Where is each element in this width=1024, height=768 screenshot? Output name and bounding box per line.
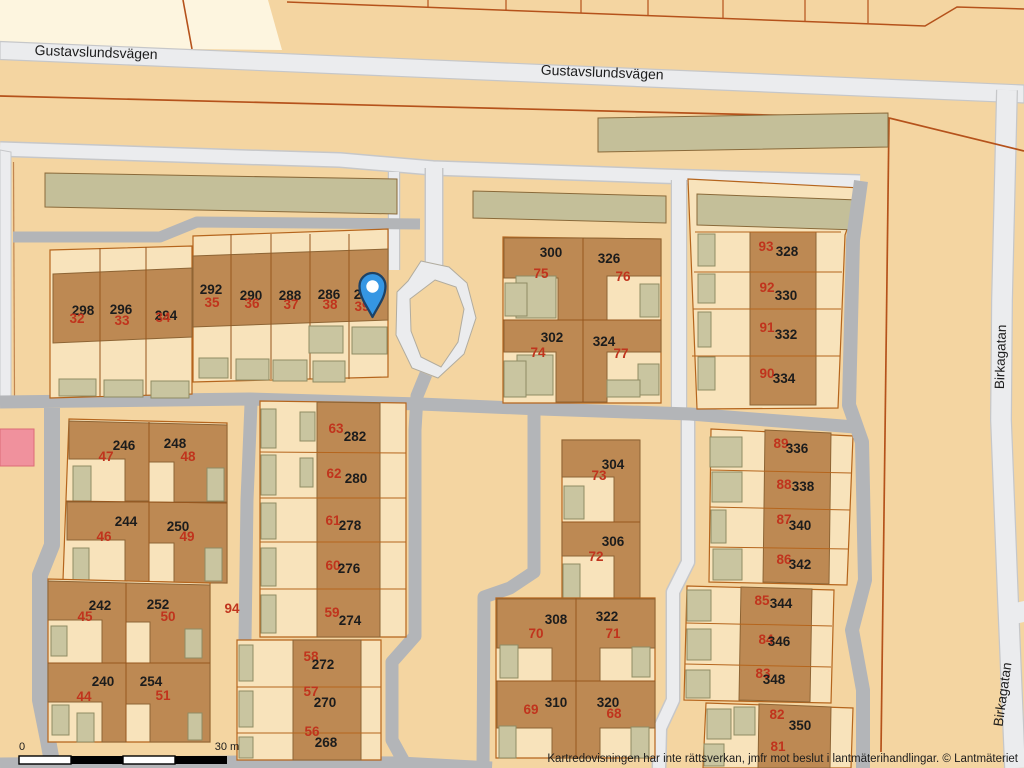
svg-text:76: 76 xyxy=(615,269,631,284)
svg-text:44: 44 xyxy=(76,689,92,704)
svg-text:276: 276 xyxy=(338,561,361,576)
svg-text:334: 334 xyxy=(773,371,796,386)
svg-text:278: 278 xyxy=(339,518,362,533)
svg-text:30 m: 30 m xyxy=(215,741,239,753)
svg-text:328: 328 xyxy=(776,244,799,259)
svg-text:37: 37 xyxy=(283,297,298,312)
svg-text:48: 48 xyxy=(180,449,196,464)
svg-text:46: 46 xyxy=(96,529,112,544)
svg-text:38: 38 xyxy=(322,297,338,312)
svg-text:324: 324 xyxy=(593,334,616,349)
svg-text:342: 342 xyxy=(789,557,812,572)
svg-text:75: 75 xyxy=(533,266,549,281)
svg-text:73: 73 xyxy=(591,468,607,483)
svg-text:32: 32 xyxy=(69,311,84,326)
svg-text:68: 68 xyxy=(606,706,622,721)
svg-text:350: 350 xyxy=(789,718,812,733)
svg-text:33: 33 xyxy=(114,313,130,328)
svg-text:338: 338 xyxy=(792,479,815,494)
svg-text:Kartredovisningen har inte rät: Kartredovisningen har inte rättsverkan, … xyxy=(547,753,1018,765)
svg-text:47: 47 xyxy=(98,449,113,464)
svg-text:332: 332 xyxy=(775,327,798,342)
svg-text:59: 59 xyxy=(324,605,339,620)
svg-text:71: 71 xyxy=(605,626,621,641)
svg-text:274: 274 xyxy=(339,613,362,628)
svg-text:70: 70 xyxy=(528,626,543,641)
svg-text:82: 82 xyxy=(769,707,784,722)
svg-text:268: 268 xyxy=(315,735,338,750)
svg-text:0: 0 xyxy=(19,741,25,753)
svg-text:340: 340 xyxy=(789,518,812,533)
svg-text:306: 306 xyxy=(602,534,625,549)
svg-text:50: 50 xyxy=(160,609,175,624)
svg-text:88: 88 xyxy=(776,477,792,492)
svg-text:280: 280 xyxy=(345,471,368,486)
svg-text:240: 240 xyxy=(92,674,115,689)
svg-text:77: 77 xyxy=(613,346,628,361)
svg-text:69: 69 xyxy=(523,702,538,717)
svg-text:91: 91 xyxy=(759,320,775,335)
svg-text:49: 49 xyxy=(179,529,194,544)
svg-text:45: 45 xyxy=(77,609,93,624)
svg-text:348: 348 xyxy=(763,672,786,687)
svg-text:282: 282 xyxy=(344,429,367,444)
svg-text:326: 326 xyxy=(598,251,621,266)
svg-text:92: 92 xyxy=(759,280,774,295)
svg-text:51: 51 xyxy=(155,688,171,703)
svg-text:246: 246 xyxy=(113,438,136,453)
svg-text:310: 310 xyxy=(545,695,568,710)
svg-text:336: 336 xyxy=(786,441,809,456)
svg-text:308: 308 xyxy=(545,612,568,627)
svg-text:93: 93 xyxy=(758,239,774,254)
svg-text:322: 322 xyxy=(596,609,619,624)
svg-text:63: 63 xyxy=(328,421,344,436)
svg-text:72: 72 xyxy=(588,549,603,564)
svg-text:74: 74 xyxy=(530,345,546,360)
svg-text:94: 94 xyxy=(224,601,240,616)
svg-text:346: 346 xyxy=(768,634,791,649)
svg-text:344: 344 xyxy=(770,596,793,611)
svg-text:270: 270 xyxy=(314,695,337,710)
svg-text:81: 81 xyxy=(770,739,786,754)
svg-text:244: 244 xyxy=(115,514,138,529)
svg-text:Birkagatan: Birkagatan xyxy=(992,324,1009,389)
svg-text:36: 36 xyxy=(244,296,260,311)
svg-text:34: 34 xyxy=(155,310,171,325)
svg-text:85: 85 xyxy=(754,593,770,608)
svg-text:254: 254 xyxy=(140,674,163,689)
svg-text:302: 302 xyxy=(541,330,564,345)
svg-text:35: 35 xyxy=(204,295,220,310)
svg-text:272: 272 xyxy=(312,657,335,672)
svg-text:300: 300 xyxy=(540,245,563,260)
svg-text:62: 62 xyxy=(326,466,341,481)
svg-text:330: 330 xyxy=(775,288,798,303)
